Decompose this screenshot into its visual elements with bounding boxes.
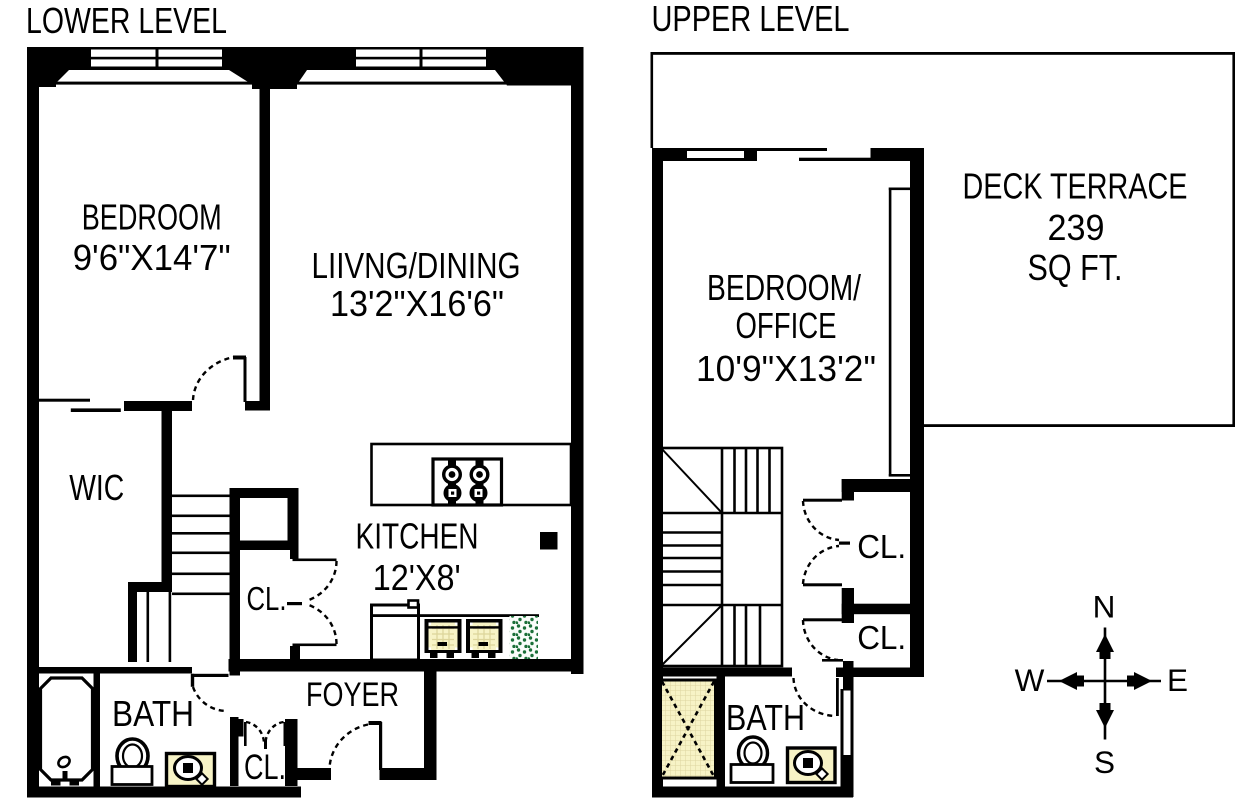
svg-text:W: W xyxy=(1015,662,1045,698)
svg-text:BATH: BATH xyxy=(726,697,805,738)
svg-text:239: 239 xyxy=(1048,207,1105,248)
svg-text:UPPER LEVEL: UPPER LEVEL xyxy=(652,0,850,39)
svg-text:12'X8': 12'X8' xyxy=(373,557,461,598)
svg-text:WIC: WIC xyxy=(69,467,124,508)
svg-text:N: N xyxy=(1093,589,1116,625)
svg-text:CL.: CL. xyxy=(857,619,906,656)
svg-text:BATH: BATH xyxy=(112,693,194,734)
svg-text:BEDROOM/: BEDROOM/ xyxy=(707,267,862,308)
svg-text:E: E xyxy=(1167,662,1188,698)
svg-text:BEDROOM: BEDROOM xyxy=(82,197,222,238)
svg-text:SQ FT.: SQ FT. xyxy=(1028,247,1123,288)
svg-text:10'9"X13'2": 10'9"X13'2" xyxy=(696,348,876,389)
svg-text:FOYER: FOYER xyxy=(306,676,399,714)
svg-text:KITCHEN: KITCHEN xyxy=(356,516,479,557)
svg-text:9'6"X14'7": 9'6"X14'7" xyxy=(73,237,231,278)
svg-text:CL.: CL. xyxy=(247,580,287,617)
svg-text:CL.: CL. xyxy=(857,528,906,565)
svg-text:LOWER LEVEL: LOWER LEVEL xyxy=(26,0,227,41)
svg-text:CL.: CL. xyxy=(244,748,286,787)
svg-text:LIIVNG/DINING: LIIVNG/DINING xyxy=(312,245,521,286)
svg-text:S: S xyxy=(1094,744,1115,780)
svg-text:OFFICE: OFFICE xyxy=(736,305,837,346)
svg-text:DECK TERRACE: DECK TERRACE xyxy=(963,166,1188,207)
svg-text:13'2"X16'6": 13'2"X16'6" xyxy=(330,283,504,324)
